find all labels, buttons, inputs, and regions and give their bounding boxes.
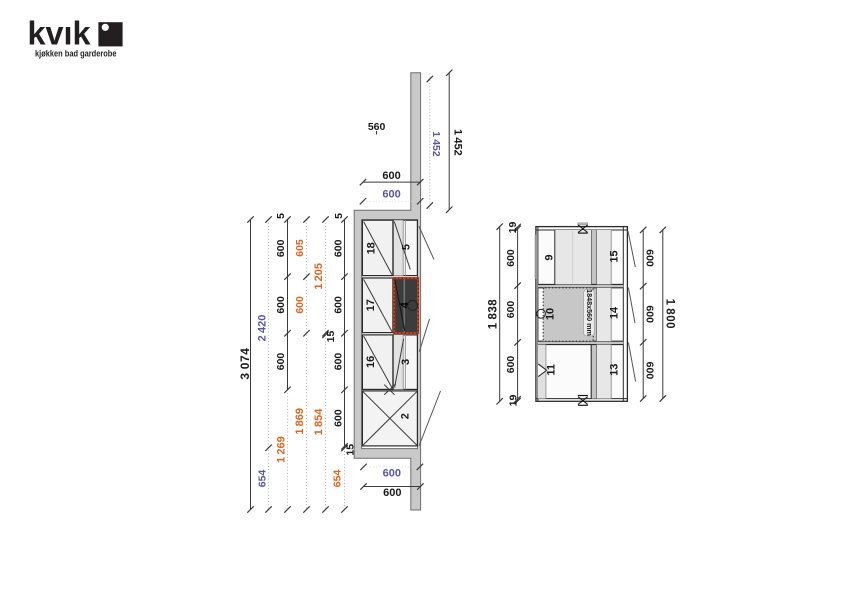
svg-text:600: 600 xyxy=(644,249,656,267)
svg-text:600: 600 xyxy=(332,353,344,371)
svg-text:600: 600 xyxy=(505,301,517,319)
svg-text:1 205: 1 205 xyxy=(313,263,325,290)
svg-text:13: 13 xyxy=(609,364,621,376)
svg-text:600: 600 xyxy=(275,353,287,371)
svg-text:9: 9 xyxy=(543,254,555,260)
svg-text:3 074: 3 074 xyxy=(238,347,252,379)
svg-text:600: 600 xyxy=(383,487,401,499)
svg-text:1 452: 1 452 xyxy=(451,129,463,156)
svg-text:654: 654 xyxy=(256,470,268,488)
svg-text:600: 600 xyxy=(382,170,400,182)
svg-text:1 838: 1 838 xyxy=(488,299,500,329)
svg-text:600: 600 xyxy=(332,409,344,427)
svg-text:2 420: 2 420 xyxy=(256,315,268,342)
svg-text:654: 654 xyxy=(331,470,343,488)
svg-text:600: 600 xyxy=(505,356,517,374)
svg-text:600: 600 xyxy=(332,239,344,257)
svg-text:3: 3 xyxy=(400,359,412,365)
svg-text:10: 10 xyxy=(544,308,556,320)
svg-text:600: 600 xyxy=(294,296,306,314)
svg-text:5: 5 xyxy=(333,213,345,219)
svg-text:600: 600 xyxy=(382,189,400,201)
svg-text:19: 19 xyxy=(507,222,519,234)
svg-text:1 854: 1 854 xyxy=(313,408,325,436)
svg-text:1 269: 1 269 xyxy=(275,436,287,463)
svg-text:15: 15 xyxy=(325,331,337,343)
svg-text:1848x560 mm: 1848x560 mm xyxy=(585,289,594,336)
svg-text:2: 2 xyxy=(400,413,412,419)
svg-text:19: 19 xyxy=(508,395,520,407)
svg-text:kjøkken bad garderobe: kjøkken bad garderobe xyxy=(35,49,117,59)
svg-text:15: 15 xyxy=(345,444,357,456)
svg-text:5: 5 xyxy=(401,244,413,250)
svg-text:600: 600 xyxy=(332,296,344,314)
svg-text:11: 11 xyxy=(545,364,557,376)
svg-text:600: 600 xyxy=(644,362,656,380)
svg-text:15: 15 xyxy=(609,250,621,262)
svg-text:600: 600 xyxy=(275,296,287,314)
svg-text:605: 605 xyxy=(294,239,306,257)
svg-text:14: 14 xyxy=(609,306,621,319)
svg-text:600: 600 xyxy=(644,305,656,323)
svg-text:5: 5 xyxy=(275,213,287,219)
svg-text:600: 600 xyxy=(505,249,517,267)
svg-text:1 800: 1 800 xyxy=(663,299,675,329)
svg-text:17: 17 xyxy=(365,299,377,311)
svg-text:18: 18 xyxy=(366,242,378,254)
svg-text:kvık: kvık xyxy=(28,15,92,52)
svg-text:1 452: 1 452 xyxy=(430,131,442,157)
svg-text:16: 16 xyxy=(365,356,377,368)
svg-text:4: 4 xyxy=(399,301,411,308)
svg-text:1 869: 1 869 xyxy=(294,408,306,435)
svg-text:600: 600 xyxy=(275,239,287,257)
svg-text:600: 600 xyxy=(383,468,401,480)
